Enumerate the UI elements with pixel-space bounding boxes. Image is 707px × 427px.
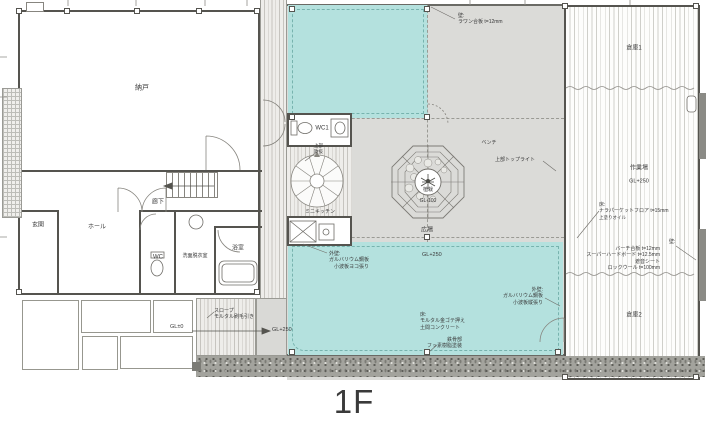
main-stairs xyxy=(166,172,218,198)
right-pier xyxy=(699,93,706,159)
room-label-washroom: 洗面脱衣室 xyxy=(182,253,207,259)
note-floor-parquet: 床: ナラパーケットフロア t=15mm 上塗りオイル xyxy=(599,202,669,220)
note-slope: スロープ モルタル刷毛引き xyxy=(214,308,254,321)
house-wall xyxy=(214,226,262,228)
south-slope-deck xyxy=(196,298,256,356)
steel-post xyxy=(424,234,430,240)
steel-post xyxy=(555,349,561,355)
column xyxy=(196,8,202,14)
house-wall xyxy=(18,210,59,212)
steel-post xyxy=(289,6,295,12)
room-label-bathroom: 浴室 xyxy=(232,245,244,253)
right-pier xyxy=(699,229,706,301)
label-toplight: 上部トップライト xyxy=(495,157,535,163)
roof-notch xyxy=(26,2,44,12)
level-planting: GL-100 xyxy=(420,198,437,204)
column xyxy=(693,374,699,380)
house-wall xyxy=(214,228,216,295)
room-label-workshop: 作業場 xyxy=(630,165,648,173)
column xyxy=(693,3,699,9)
house-wall xyxy=(57,212,59,295)
gravel-band xyxy=(196,356,705,377)
column xyxy=(562,374,568,380)
column xyxy=(254,289,260,295)
steel-post xyxy=(289,114,295,120)
note-wall-lauan: 壁: ラワン合板 t=12mm xyxy=(458,13,503,26)
house-wall xyxy=(139,210,262,212)
paving-slab xyxy=(22,300,79,370)
room-label-warehouse1: 倉庫1 xyxy=(626,45,641,53)
room-label-entrance: 玄関 xyxy=(32,222,44,230)
grid-line xyxy=(427,5,428,242)
deck-strip xyxy=(260,0,287,300)
paving-slab xyxy=(82,336,118,370)
note-floor-mortar: 床: モルタル金ゴテ押え 土間コンクリート xyxy=(420,312,465,331)
side-ramp-hatch xyxy=(2,88,22,218)
room-label-kitchen: ミニキッチン xyxy=(305,209,335,215)
steel-post xyxy=(424,349,430,355)
room-label-hall: ホール xyxy=(88,224,106,232)
level-workshop: GL+250 xyxy=(629,179,649,186)
steel-post xyxy=(289,349,295,355)
highlight-zone-north xyxy=(288,5,428,118)
warehouse-building xyxy=(564,5,700,380)
note-wall-birch-head: 壁: xyxy=(669,239,675,245)
level-ground-zero: GL±0 xyxy=(170,324,183,331)
column xyxy=(16,289,22,295)
column xyxy=(254,8,260,14)
paving-slab xyxy=(81,300,151,333)
steel-post xyxy=(424,114,430,120)
column xyxy=(16,8,22,14)
column xyxy=(64,8,70,14)
sheet-title: 1F xyxy=(334,383,375,421)
room-label-wc1: WC1 xyxy=(315,125,328,133)
column xyxy=(134,8,140,14)
floor-plan-1f: 納戸 玄関 ホール 廊下 WC 洗面脱衣室 浴室 WC1 ミニキッチン 倉庫1 … xyxy=(0,0,707,427)
steel-post xyxy=(424,6,430,12)
room-label-storage: 納戸 xyxy=(135,85,149,94)
note-void-above: 上部 吹抜 xyxy=(314,143,323,154)
house-wall xyxy=(139,210,141,295)
paving-slab xyxy=(120,336,193,369)
column xyxy=(562,3,568,9)
room-mini-kitchen xyxy=(287,216,352,246)
room-label-warehouse2: 倉庫2 xyxy=(626,312,641,320)
label-planting: 植栽 xyxy=(423,187,433,193)
level-slope-top: GL+250 xyxy=(272,327,292,334)
label-bench: ベンチ xyxy=(481,140,496,146)
note-steel-coating: 鉄骨部 フッ素樹脂塗装 xyxy=(427,337,462,350)
note-extwall-vertical: 外壁: ガルバリウム鋼板 小波板縦張り xyxy=(503,287,543,306)
corner-stone xyxy=(192,362,201,371)
room-label-plaza: 広場 xyxy=(421,227,433,235)
room-label-corridor: 廊下 xyxy=(152,199,164,207)
note-wall-birch: バーチ合板 t=12mm スーパーハードボード t=12.5mm 遮音シート ロ… xyxy=(586,246,660,271)
note-extwall-horizontal: 外壁: ガルバリウム鋼板 小波板ヨコ張り xyxy=(329,251,369,270)
room-label-wc: WC xyxy=(153,254,163,262)
highlight-zone-north-dash xyxy=(292,9,424,114)
house-wall xyxy=(18,170,262,172)
level-plaza: GL+250 xyxy=(422,252,442,259)
house-wall xyxy=(174,212,176,295)
